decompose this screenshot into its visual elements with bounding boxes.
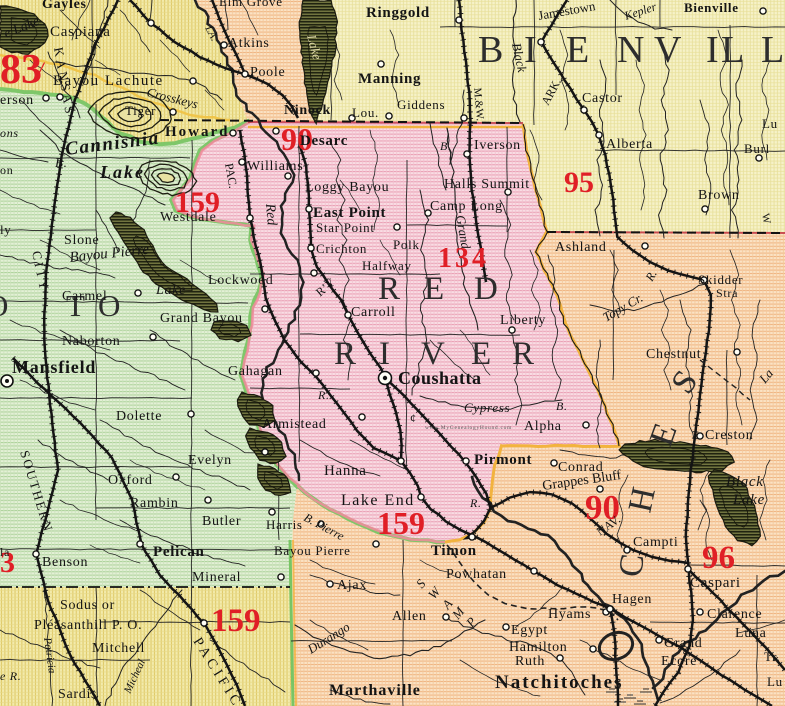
svg-text:Giddens: Giddens: [397, 97, 445, 112]
svg-text:Brown: Brown: [698, 188, 740, 203]
svg-text:Stra: Stra: [716, 286, 738, 300]
svg-text:Oxford: Oxford: [108, 473, 153, 488]
svg-text:95: 95: [564, 166, 594, 199]
svg-text:Elm Grove: Elm Grove: [219, 0, 283, 9]
svg-text:R.: R.: [469, 496, 482, 510]
svg-text:N: N: [617, 29, 644, 71]
svg-text:E: E: [471, 336, 491, 372]
svg-text:R: R: [378, 271, 400, 307]
svg-text:L: L: [761, 29, 784, 71]
svg-text:Luna: Luna: [735, 626, 767, 641]
svg-text:Pléasanthill P. O.: Pléasanthill P. O.: [34, 618, 142, 633]
svg-text:O: O: [0, 288, 8, 323]
svg-text:Lu: Lu: [767, 674, 783, 689]
svg-text:Dolette: Dolette: [116, 409, 162, 424]
svg-text:Grand Bayou: Grand Bayou: [160, 311, 243, 326]
svg-text:Howard: Howard: [165, 124, 230, 140]
svg-text:Mineral: Mineral: [192, 570, 241, 585]
svg-text:159: 159: [377, 505, 425, 541]
svg-text:Mansfield: Mansfield: [12, 357, 96, 377]
svg-text:Lu: Lu: [762, 116, 778, 131]
svg-text:Bienville: Bienville: [684, 0, 739, 15]
svg-text:e R.: e R.: [0, 669, 21, 683]
svg-text:Williams: Williams: [247, 159, 303, 174]
svg-text:B: B: [478, 29, 503, 71]
svg-text:B.: B.: [556, 399, 568, 413]
svg-text:Halfway: Halfway: [362, 258, 412, 273]
svg-text:Polk: Polk: [393, 237, 420, 252]
svg-text:Sardis: Sardis: [58, 687, 97, 702]
svg-text:Tiger: Tiger: [125, 103, 156, 118]
svg-text:ly: ly: [0, 222, 12, 237]
svg-text:¢: ¢: [410, 411, 417, 425]
svg-text:Sodus or: Sodus or: [60, 598, 115, 613]
svg-text:Mitchell: Mitchell: [92, 641, 145, 656]
svg-text:Coushatta: Coushatta: [398, 368, 482, 388]
svg-text:Lake: Lake: [99, 162, 145, 182]
svg-text:Lockwood: Lockwood: [208, 273, 273, 288]
svg-text:Alpha: Alpha: [524, 419, 562, 434]
svg-text:on: on: [0, 163, 13, 177]
svg-text:Caspiana: Caspiana: [50, 24, 111, 40]
svg-text:96: 96: [702, 540, 735, 576]
svg-text:B.: B.: [440, 139, 452, 153]
svg-text:Ashland: Ashland: [555, 240, 607, 255]
svg-text:I: I: [706, 29, 719, 71]
svg-text:Campti: Campti: [633, 535, 678, 550]
svg-text:Pelican: Pelican: [153, 544, 205, 560]
svg-text:Grand: Grand: [664, 636, 703, 651]
svg-text:Hagen: Hagen: [612, 592, 652, 607]
svg-text:Harris: Harris: [266, 517, 303, 532]
svg-text:Caspari: Caspari: [690, 575, 741, 591]
svg-text:Benson: Benson: [42, 555, 88, 570]
svg-text:Westdale: Westdale: [160, 210, 217, 225]
svg-text:Red: Red: [262, 202, 279, 227]
svg-text:Star Point: Star Point: [316, 220, 375, 235]
svg-text:Black: Black: [726, 474, 764, 490]
svg-text:E: E: [566, 29, 589, 71]
svg-text:Timon: Timon: [431, 543, 477, 559]
svg-text:Ringgold: Ringgold: [366, 5, 430, 21]
svg-text:Bayou Pierre: Bayou Pierre: [274, 543, 351, 558]
svg-text:Burl: Burl: [744, 141, 770, 156]
svg-text:Natchitoches: Natchitoches: [495, 672, 623, 693]
svg-text:Loggy Bayou: Loggy Bayou: [305, 180, 389, 195]
svg-text:Butler: Butler: [202, 514, 241, 529]
svg-text:159: 159: [211, 603, 261, 639]
svg-text:Armistead: Armistead: [262, 417, 327, 432]
svg-text:R: R: [512, 336, 534, 372]
svg-text:V: V: [654, 29, 682, 71]
svg-text:ons: ons: [0, 126, 19, 140]
svg-text:Manning: Manning: [358, 71, 421, 87]
svg-text:Evelyn: Evelyn: [188, 453, 232, 468]
svg-text:Naborton: Naborton: [62, 334, 120, 349]
svg-text:Lake End: Lake End: [341, 492, 415, 509]
svg-text:Rambin: Rambin: [130, 496, 179, 511]
svg-text:R: R: [334, 336, 356, 372]
svg-text:Hamilton: Hamilton: [509, 640, 567, 655]
svg-text:Hyams: Hyams: [548, 607, 591, 622]
svg-text:Slone: Slone: [64, 233, 99, 248]
svg-text:Poole: Poole: [250, 65, 285, 80]
svg-text:Marthaville: Marthaville: [329, 682, 421, 699]
svg-text:Chestnut: Chestnut: [646, 347, 701, 362]
svg-text:Powhatan: Powhatan: [446, 567, 507, 582]
svg-text:V: V: [421, 336, 445, 372]
svg-text:R.: R.: [317, 388, 330, 402]
svg-text:Iverson: Iverson: [474, 138, 521, 153]
svg-text:Crichton: Crichton: [316, 241, 367, 256]
svg-text:E: E: [424, 271, 444, 307]
svg-text:Hanna: Hanna: [324, 463, 367, 479]
svg-text:Allen: Allen: [392, 609, 427, 624]
svg-text:D: D: [474, 271, 498, 307]
svg-text:Ajax: Ajax: [337, 578, 367, 593]
svg-text:Alberta: Alberta: [606, 137, 653, 152]
svg-text:Egypt: Egypt: [511, 623, 548, 638]
svg-text:Clarence: Clarence: [707, 607, 762, 622]
svg-text:Carroll: Carroll: [351, 305, 396, 320]
svg-text:Ruth: Ruth: [515, 654, 545, 669]
svg-text:Skidder: Skidder: [698, 272, 743, 287]
svg-text:Camp Long: Camp Long: [430, 199, 503, 214]
svg-text:Atkins: Atkins: [228, 36, 270, 51]
svg-text:www.MyGenealogyHound.com: www.MyGenealogyHound.com: [425, 425, 512, 431]
svg-text:Carmel: Carmel: [62, 289, 107, 304]
svg-text:C: C: [612, 552, 651, 579]
svg-text:Pirmont: Pirmont: [474, 452, 532, 468]
svg-text:Ninock: Ninock: [284, 103, 331, 118]
svg-text:Castor: Castor: [582, 91, 623, 106]
svg-text:Creston: Creston: [705, 428, 753, 443]
svg-text:Tr.: Tr.: [764, 649, 780, 664]
svg-text:Halls Summit: Halls Summit: [444, 177, 530, 192]
svg-text:Gayles: Gayles: [42, 0, 87, 12]
svg-text:Ecore: Ecore: [661, 654, 697, 669]
svg-text:I: I: [379, 336, 390, 372]
svg-text:Desarc: Desarc: [300, 133, 348, 149]
svg-text:Cypress: Cypress: [464, 400, 510, 415]
svg-text:Gahagan: Gahagan: [228, 364, 283, 379]
svg-text:L: L: [721, 29, 744, 71]
svg-text:la: la: [0, 545, 10, 559]
svg-text:erson: erson: [0, 93, 34, 108]
svg-text:Liberty: Liberty: [500, 313, 546, 328]
svg-text:East Point: East Point: [313, 205, 386, 221]
svg-text:Lake: Lake: [155, 283, 186, 298]
svg-text:Lake: Lake: [732, 492, 765, 508]
svg-text:Lou.: Lou.: [352, 105, 379, 120]
